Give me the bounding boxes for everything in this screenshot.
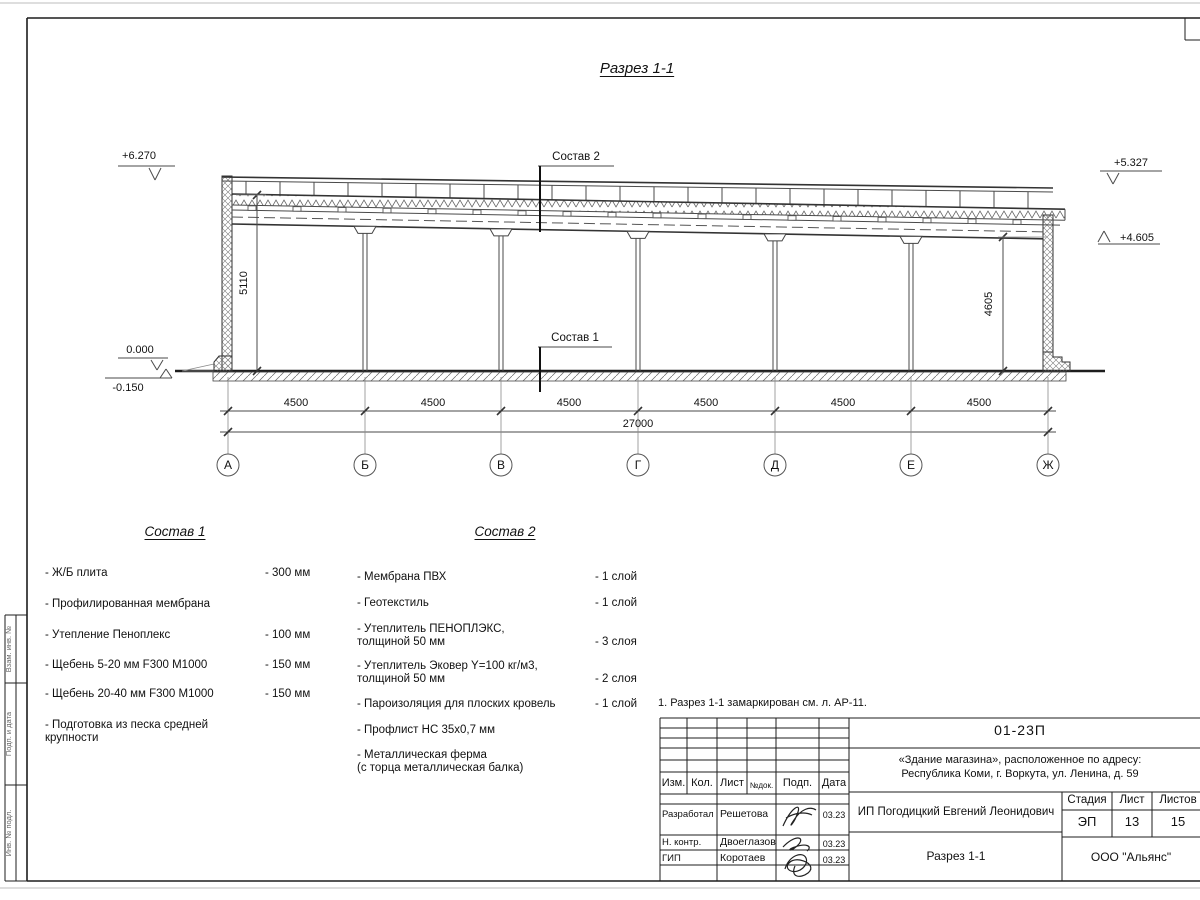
axis-letter: Е: [907, 458, 915, 472]
side-stamp-label: Взам. инв. №: [4, 626, 13, 672]
height-dimension-right: 4605: [983, 292, 995, 316]
column-cap: [490, 229, 512, 236]
right-wall-base: [1043, 352, 1070, 371]
drawing-sheet: Взам. инв. №Подп. и датаИнв. № подл. 450…: [0, 0, 1200, 900]
composition-2-title: Состав 2: [352, 524, 658, 539]
stage-label: Стадия: [1062, 794, 1112, 806]
list-item: - Подготовка из песка средней крупности: [40, 719, 325, 745]
list-item: - Щебень 20-40 мм F300 М1000- 150 мм: [40, 688, 325, 701]
date-ncontr: 03.23: [820, 838, 848, 850]
span-dimension: 4500: [694, 397, 718, 409]
col-doc: №док.: [747, 780, 776, 792]
sheet-value: 13: [1112, 816, 1152, 828]
elevation-left-top: +6.270: [122, 150, 156, 162]
sheet-label: Лист: [1112, 794, 1152, 806]
list-item: - Утепление Пеноплекс- 100 мм: [40, 629, 325, 642]
axis-letter: В: [497, 458, 505, 472]
col-kol: Кол.: [687, 777, 717, 789]
col-podp: Подп.: [776, 777, 819, 789]
date-gip: 03.23: [820, 854, 848, 866]
height-dimension-left: 5110: [238, 271, 250, 295]
left-wall: [222, 176, 232, 371]
list-item: - Металлическая ферма (с торца металличе…: [352, 749, 658, 775]
elevation-zero: 0.000: [126, 344, 154, 356]
building-section-drawing: 45004500450045004500450027000АБВГДЕЖ5110…: [105, 150, 1162, 476]
span-dimension: 4500: [831, 397, 855, 409]
list-item: - Утеплитель Эковер Y=100 кг/м3, толщино…: [352, 660, 658, 686]
span-dimension: 4500: [967, 397, 991, 409]
right-wall: [1043, 215, 1053, 352]
col-data: Дата: [819, 777, 849, 789]
elevation-minus: -0.150: [112, 382, 143, 394]
sheet-note: 1. Разрез 1-1 замаркирован см. л. АР-11.: [658, 697, 867, 709]
name-developer: Решетова: [720, 808, 768, 820]
span-dimension: 4500: [284, 397, 308, 409]
list-item: - Утеплитель ПЕНОПЛЭКС, толщиной 50 мм- …: [352, 623, 658, 649]
span-dimension: 4500: [557, 397, 581, 409]
side-stamp-label: Инв. № подл.: [4, 810, 13, 857]
document-number: 01-23П: [850, 724, 1190, 736]
sheets-label: Листов: [1152, 794, 1200, 806]
signatures: [783, 807, 816, 876]
side-stamp-label: Подп. и дата: [4, 711, 13, 756]
axis-letter: Ж: [1042, 458, 1053, 472]
name-ncontr: Двоеглазов: [720, 836, 776, 848]
list-item: - Мембрана ПВХ- 1 слой: [352, 571, 658, 584]
composition-1-callout: Состав 1: [551, 332, 599, 344]
list-item: - Профлист НС 35х0,7 мм: [352, 724, 658, 737]
project-address: «Здание магазина», расположенное по адре…: [855, 754, 1185, 781]
composition-1-list: Состав 1 - Ж/Б плита- 300 мм - Профилиро…: [40, 524, 325, 764]
list-item: - Профилированная мембрана: [40, 598, 325, 611]
stage-value: ЭП: [1062, 816, 1112, 828]
signature-ncontr: [783, 838, 809, 851]
side-stamp: Взам. инв. №Подп. и датаИнв. № подл.: [4, 615, 27, 881]
col-list: Лист: [717, 777, 747, 789]
signature-developer: [783, 807, 816, 826]
list-item: - Геотекстиль- 1 слой: [352, 597, 658, 610]
client-name: ИП Погодицкий Евгений Леонидович: [850, 806, 1062, 818]
role-developer: Разработал: [662, 809, 714, 821]
column-cap: [354, 226, 376, 233]
composition-2-list: Состав 2 - Мембрана ПВХ- 1 слой - Геотек…: [352, 524, 658, 789]
column-cap: [764, 234, 786, 241]
elevation-right-roof: +4.605: [1120, 232, 1154, 244]
role-ncontr: Н. контр.: [662, 837, 701, 849]
company-name: ООО "Альянс": [1062, 851, 1200, 863]
composition-1-title: Состав 1: [40, 524, 310, 539]
sheets-value: 15: [1152, 816, 1200, 828]
role-gip: ГИП: [662, 853, 681, 865]
sheet-title: Разрез 1-1: [850, 850, 1062, 862]
drawing-title: Разрез 1-1: [537, 60, 737, 77]
total-dimension: 27000: [623, 418, 654, 430]
axis-letter: А: [224, 458, 232, 472]
floor-slab: [213, 372, 1066, 381]
span-dimension: 4500: [421, 397, 445, 409]
list-item: - Ж/Б плита- 300 мм: [40, 567, 325, 580]
elevation-right-top: +5.327: [1114, 157, 1148, 169]
column-cap: [627, 231, 649, 238]
col-izm: Изм.: [660, 777, 687, 789]
column-cap: [900, 236, 922, 243]
date-developer: 03.23: [820, 809, 848, 821]
axis-letter: Б: [361, 458, 369, 472]
axis-letter: Г: [635, 458, 642, 472]
list-item: - Пароизоляция для плоских кровель- 1 сл…: [352, 698, 658, 711]
left-wall-base: [214, 356, 232, 371]
name-gip: Коротаев: [720, 852, 765, 864]
list-item: - Щебень 5-20 мм F300 М1000- 150 мм: [40, 659, 325, 672]
axis-letter: Д: [771, 458, 779, 472]
composition-2-callout: Состав 2: [552, 151, 600, 163]
